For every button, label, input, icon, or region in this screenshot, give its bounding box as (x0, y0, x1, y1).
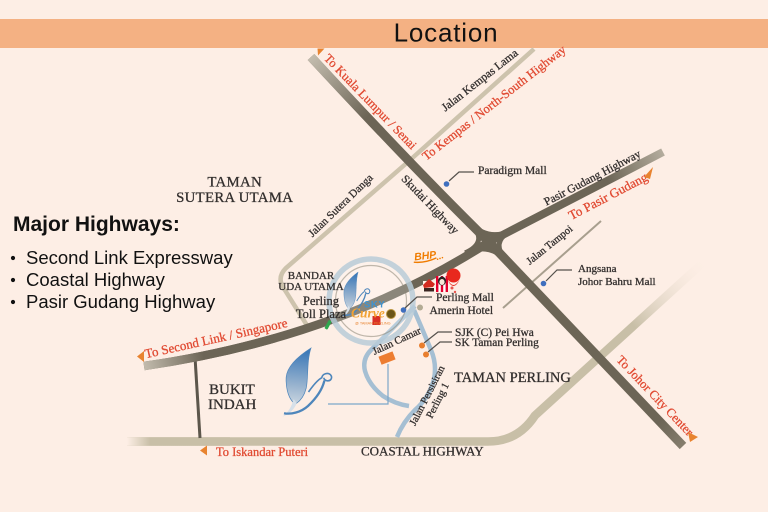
svg-text:Amerin Hotel: Amerin Hotel (430, 305, 494, 317)
svg-text:To Iskandar Puteri: To Iskandar Puteri (216, 445, 309, 459)
svg-text:INDAH: INDAH (208, 397, 256, 413)
svg-text:TAMAN PERLING: TAMAN PERLING (454, 370, 571, 386)
svg-text:TAMAN: TAMAN (207, 174, 262, 190)
svg-text:BUKIT: BUKIT (209, 382, 255, 398)
svg-text:Second Link Expressway: Second Link Expressway (26, 247, 233, 268)
svg-text:SK Taman Perling: SK Taman Perling (455, 337, 539, 349)
svg-text:Coastal Highway: Coastal Highway (26, 269, 166, 290)
svg-text:Toll Plaza: Toll Plaza (296, 307, 347, 321)
svg-text:@ TAMAN PERLING: @ TAMAN PERLING (355, 322, 391, 326)
svg-text:Paradigm Mall: Paradigm Mall (478, 165, 547, 177)
svg-text:Perling Mall: Perling Mall (436, 292, 494, 304)
svg-text:Curve: Curve (351, 306, 385, 321)
svg-text:Pasir Gudang Highway: Pasir Gudang Highway (26, 291, 216, 312)
svg-text:Major Highways:: Major Highways: (13, 213, 180, 236)
svg-text:Location: Location (394, 18, 499, 48)
svg-text:COASTAL HIGHWAY: COASTAL HIGHWAY (361, 444, 484, 459)
svg-text:UDA UTAMA: UDA UTAMA (278, 281, 343, 293)
svg-text:Angsana: Angsana (578, 263, 617, 275)
svg-text:Johor Bahru Mall: Johor Bahru Mall (578, 276, 656, 288)
svg-text:Perling: Perling (303, 294, 340, 308)
svg-text:SUTERA UTAMA: SUTERA UTAMA (176, 190, 293, 206)
